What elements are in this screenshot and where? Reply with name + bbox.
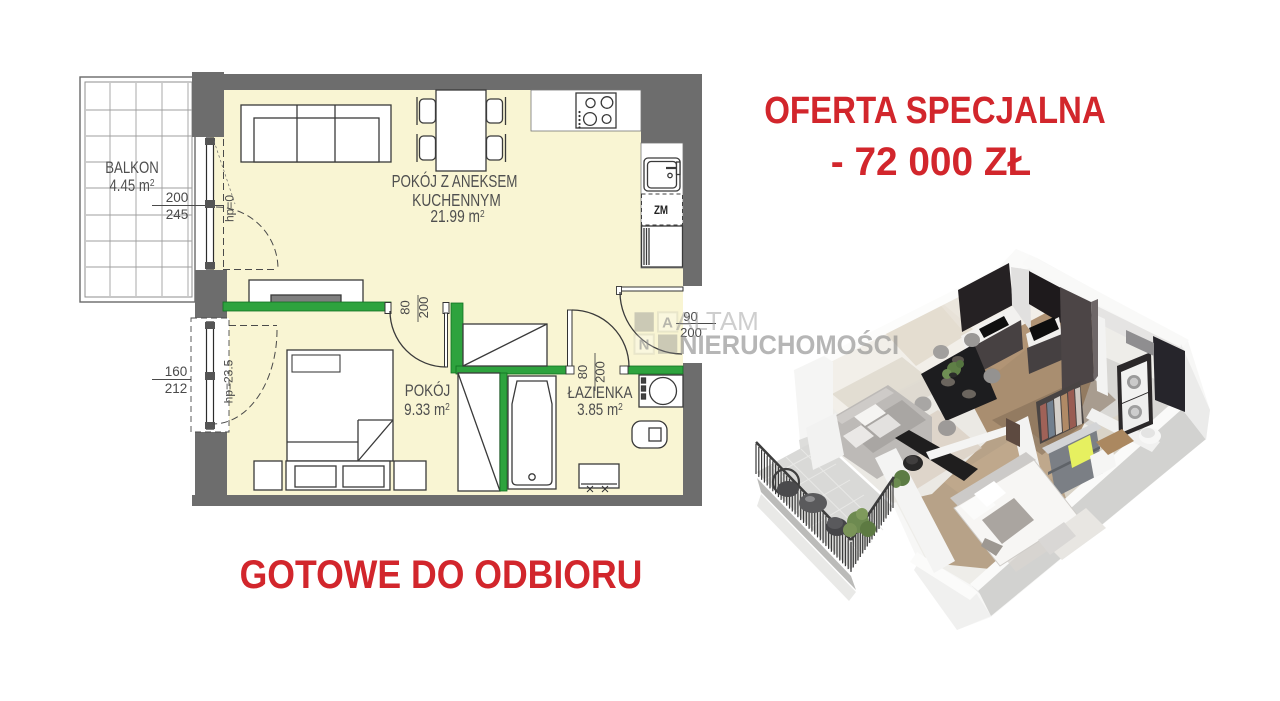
svg-text:245: 245 <box>166 207 189 222</box>
svg-text:hp=0: hp=0 <box>223 195 237 222</box>
svg-text:200: 200 <box>416 297 431 319</box>
svg-text:4.45 m2: 4.45 m2 <box>109 177 154 196</box>
svg-text:BALKON: BALKON <box>105 159 159 178</box>
svg-text:3.85 m2: 3.85 m2 <box>577 401 623 420</box>
svg-text:200: 200 <box>593 361 608 383</box>
svg-text:80: 80 <box>398 300 413 314</box>
svg-text:POKÓJ: POKÓJ <box>405 382 451 401</box>
svg-text:hp=23.5: hp=23.5 <box>222 359 236 403</box>
svg-text:A: A <box>662 315 673 332</box>
svg-text:OFERTA SPECJALNA: OFERTA SPECJALNA <box>764 89 1106 132</box>
svg-text:80: 80 <box>575 365 590 379</box>
svg-text:160: 160 <box>165 364 188 379</box>
svg-text:21.99 m2: 21.99 m2 <box>430 208 484 227</box>
svg-text:ZM: ZM <box>654 204 668 217</box>
svg-text:200: 200 <box>166 190 189 205</box>
svg-text:9.33 m2: 9.33 m2 <box>404 401 450 420</box>
svg-text:ŁAZIENKA: ŁAZIENKA <box>568 384 634 403</box>
svg-text:N: N <box>639 337 650 354</box>
svg-text:GOTOWE DO ODBIORU: GOTOWE DO ODBIORU <box>240 553 643 597</box>
svg-text:- 72 000 ZŁ: - 72 000 ZŁ <box>831 139 1031 184</box>
svg-text:POKÓJ Z ANEKSEM: POKÓJ Z ANEKSEM <box>392 173 518 192</box>
svg-text:NIERUCHOMOŚCI: NIERUCHOMOŚCI <box>679 330 899 361</box>
svg-text:212: 212 <box>165 381 188 396</box>
